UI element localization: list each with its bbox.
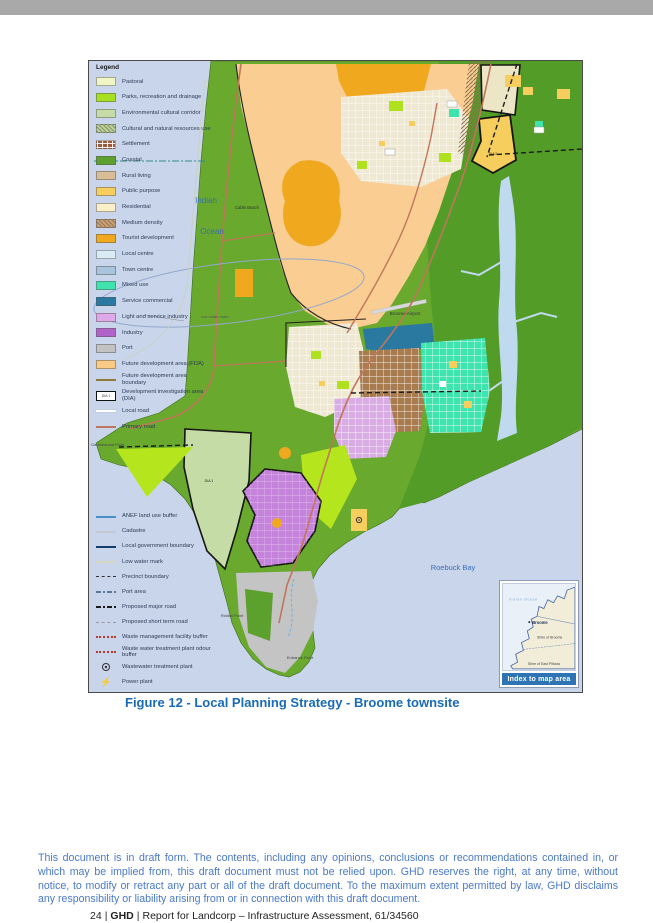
map-figure: Indian Ocean Cable Beach low water mark … xyxy=(88,60,583,693)
inset-shire-broome-label: Shire of Broome xyxy=(537,636,562,640)
inset-title: Index to map area xyxy=(502,673,576,685)
roebuck-bay-label: Roebuck Bay xyxy=(431,563,476,572)
dia5-label: DIA 5 xyxy=(489,152,498,156)
inset-town-label: Broome xyxy=(532,620,548,625)
inset-shire-pilbara-label: Shire of East Pilbara xyxy=(528,662,560,666)
low-water-mark-label: low water mark xyxy=(202,314,229,319)
airport-label: Broome Airport xyxy=(390,311,421,316)
riddell-point-label: Riddell Point xyxy=(221,613,244,618)
inset-map: Indian Ocean Broome Shire of Broome Shir… xyxy=(502,583,576,671)
separator: | xyxy=(105,910,108,922)
separator: | xyxy=(137,910,140,922)
dia1-label: DIA 1 xyxy=(205,479,214,483)
report-ref: Report for Landcorp – Infrastructure Ass… xyxy=(143,910,419,922)
ocean-label-line1: Indian xyxy=(195,196,217,205)
page-number: 24 xyxy=(90,910,102,922)
draft-disclaimer: This document is in draft form. The cont… xyxy=(38,852,618,907)
entrance-point-label: Entrance Point xyxy=(287,655,314,660)
ocean-label-line2: Ocean xyxy=(200,227,224,236)
brand: GHD xyxy=(110,910,133,922)
map-inset: Indian Ocean Broome Shire of Broome Shir… xyxy=(499,580,579,688)
top-bar xyxy=(0,0,653,15)
inset-map-svg: Indian Ocean Broome Shire of Broome Shir… xyxy=(503,584,575,670)
cable-beach-label: Cable Beach xyxy=(235,205,260,210)
inset-ocean-label: Indian Ocean xyxy=(509,598,538,602)
footer: This document is in draft form. The cont… xyxy=(38,852,618,922)
gantheaume-point-label: Gantheaume Point xyxy=(91,442,125,447)
page-footer-line: 24|GHD|Report for Landcorp – Infrastruct… xyxy=(90,910,618,922)
figure-caption: Figure 12 - Local Planning Strategy - Br… xyxy=(125,695,459,710)
